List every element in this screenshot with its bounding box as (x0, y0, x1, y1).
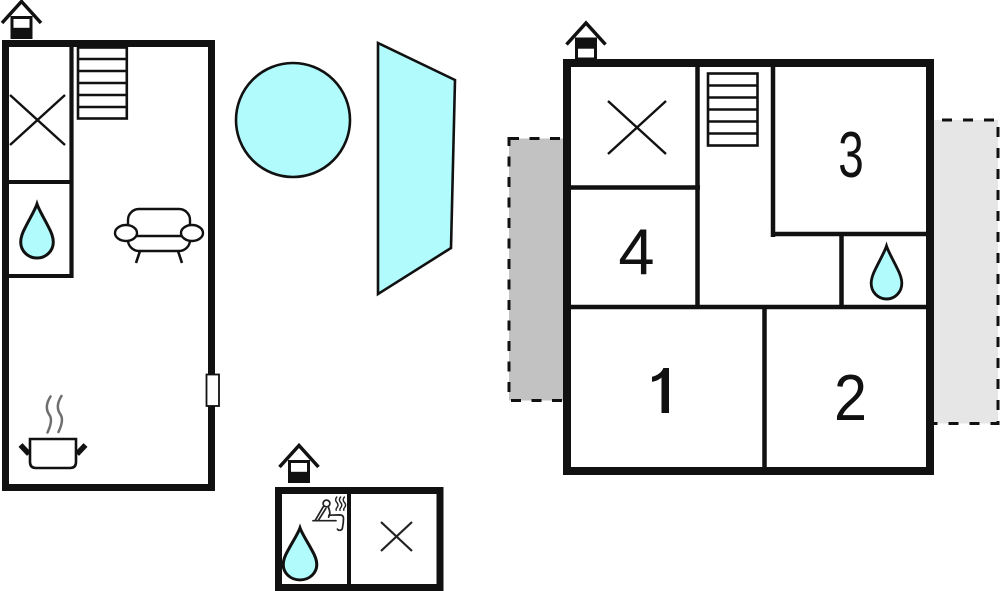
svg-text:3: 3 (838, 118, 864, 191)
svg-text:4: 4 (618, 215, 654, 288)
svg-text:2: 2 (834, 361, 867, 434)
